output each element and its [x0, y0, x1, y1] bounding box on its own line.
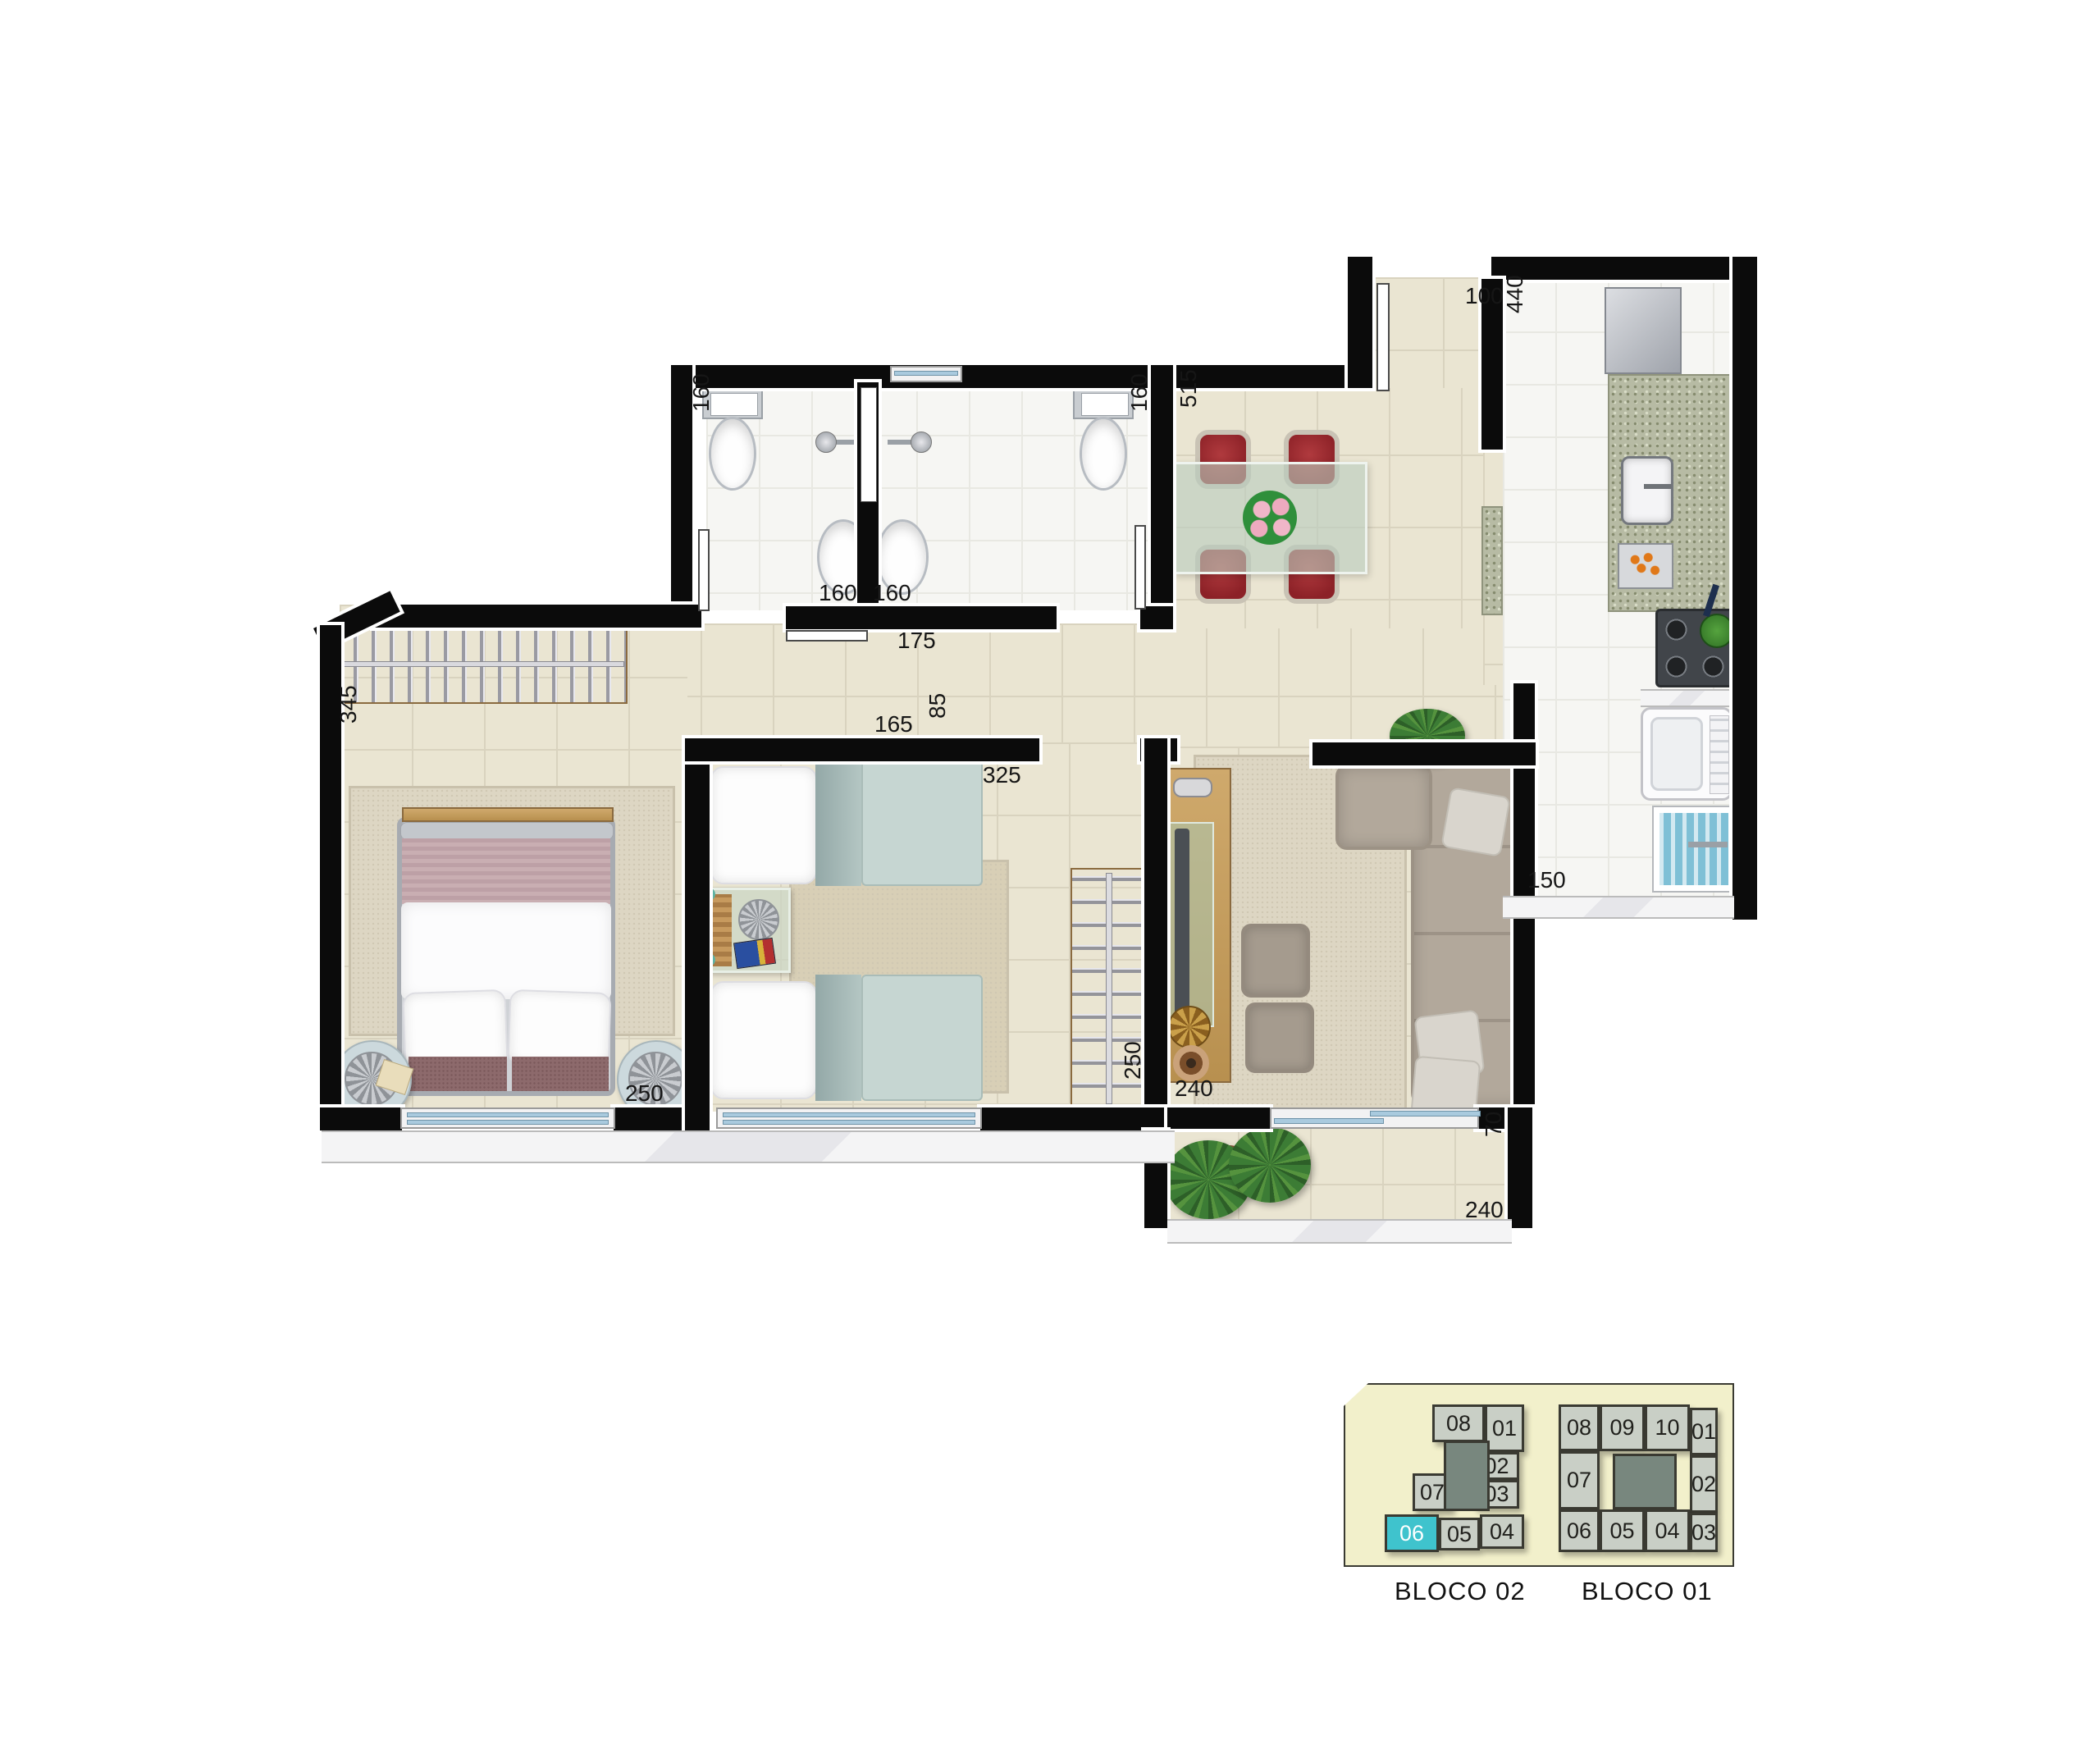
- toilet-bowl-icon: [1080, 417, 1127, 491]
- wall: [673, 365, 1370, 388]
- bathroom-door-leaf: [698, 529, 710, 611]
- dimension-label: 70: [1481, 1112, 1506, 1137]
- sofa-chaise: [1335, 765, 1432, 850]
- unit-cell: 01: [1485, 1404, 1524, 1452]
- ottoman: [1241, 924, 1310, 998]
- faucet-icon: [1644, 484, 1672, 489]
- unit-cell: 04: [1645, 1509, 1690, 1552]
- balcony-slider-panel: [1370, 1111, 1481, 1117]
- tank-faucet-icon: [1688, 842, 1728, 847]
- prep-board-icon: [1618, 543, 1673, 589]
- nightstand-lamp-icon: [738, 899, 779, 940]
- hall-door-leaf: [786, 630, 868, 642]
- dimension-label: 515: [1176, 369, 1201, 408]
- single-bed-sheet-fold: [815, 760, 861, 886]
- dimension-label: 240: [1175, 1076, 1213, 1101]
- window-sill: [716, 1107, 982, 1129]
- building-core: [1613, 1454, 1677, 1509]
- shower-head-icon: [911, 432, 932, 453]
- unit-cell: 07: [1559, 1451, 1600, 1509]
- dimension-label: 85: [925, 693, 950, 719]
- wall: [1140, 606, 1173, 629]
- dimension-label: 160: [873, 581, 911, 605]
- wall: [1491, 257, 1757, 280]
- unit-cell-highlighted: 06: [1385, 1514, 1439, 1552]
- window-sill: [400, 1107, 615, 1129]
- wall: [373, 605, 701, 628]
- tv: [1175, 829, 1189, 1021]
- dimension-label: 250: [1121, 1041, 1145, 1080]
- pan-icon: [1700, 614, 1734, 648]
- bloco01-label: BLOCO 01: [1582, 1577, 1713, 1606]
- magazine-icon: [733, 938, 776, 969]
- wall: [1508, 1107, 1532, 1228]
- wall: [786, 606, 1057, 629]
- wall: [685, 742, 710, 1130]
- master-headboard: [402, 807, 614, 822]
- toilet-icon: [1073, 386, 1134, 419]
- bathroom-door-leaf: [1134, 525, 1146, 610]
- unit-cell: 06: [1559, 1509, 1600, 1552]
- master-footer: [409, 1057, 507, 1091]
- dimension-label: 250: [625, 1081, 664, 1106]
- shower-niche: [861, 387, 877, 502]
- counter-strip: [1641, 689, 1732, 707]
- wall: [1312, 742, 1536, 765]
- kitchen-sink-icon: [1621, 456, 1673, 525]
- wall: [1348, 257, 1372, 388]
- dimension-label: 440: [1503, 275, 1527, 313]
- dimension-label: 345: [336, 685, 361, 724]
- unit-cell: 08: [1432, 1404, 1485, 1442]
- laundry-tank-icon: [1654, 807, 1734, 891]
- walkway-sill: [322, 1130, 1175, 1163]
- dimension-label: 160: [689, 373, 714, 412]
- kitchen-peninsula-counter: [1481, 506, 1503, 615]
- dimension-label: 150: [1527, 868, 1566, 893]
- dvd-player-icon: [1173, 778, 1212, 797]
- shower-head-icon: [815, 432, 837, 453]
- plant-icon: [1229, 1127, 1311, 1203]
- single-bed-cover: [861, 975, 983, 1101]
- window-glazing: [723, 1112, 975, 1117]
- unit-cell: 10: [1645, 1404, 1690, 1451]
- unit-cell: 02: [1690, 1455, 1718, 1513]
- ottoman: [1245, 1002, 1314, 1073]
- toilet-lid: [710, 393, 758, 416]
- sofa-pillow: [1440, 787, 1511, 857]
- wardrobe-rail: [1106, 873, 1112, 1104]
- building-core: [1444, 1441, 1490, 1511]
- single-bed-cover: [861, 760, 983, 886]
- wall: [1144, 738, 1167, 1130]
- deco-pinwheel-icon: [1168, 1006, 1211, 1048]
- floor-plan-page: 100 440 160 160 515 160 160 175 165 85 3…: [0, 0, 2100, 1749]
- master-duvet: [401, 902, 611, 999]
- unit-cell: 05: [1439, 1518, 1480, 1550]
- service-sill: [1503, 896, 1734, 919]
- window-glazing: [894, 371, 958, 376]
- window-glazing: [723, 1120, 975, 1125]
- dimension-label: 160: [819, 581, 857, 605]
- dimension-label: 240: [1465, 1198, 1504, 1222]
- dimension-label: 160: [1127, 373, 1152, 412]
- master-bolster: [400, 822, 614, 840]
- balcony-sill: [1167, 1219, 1512, 1244]
- wall: [1167, 1107, 1270, 1129]
- hall-floor: [628, 623, 1514, 747]
- wall: [1151, 365, 1173, 629]
- single-bed-pillow: [710, 766, 817, 884]
- dimension-label: 165: [874, 712, 913, 737]
- unit-cell: 09: [1600, 1404, 1645, 1451]
- balcony-slider-panel: [1274, 1118, 1384, 1124]
- dimension-label: 100: [1465, 284, 1504, 308]
- single-bed-sheet-fold: [815, 975, 861, 1101]
- master-footer: [512, 1057, 609, 1091]
- toilet-bowl-icon: [709, 417, 756, 491]
- wall: [980, 1107, 1171, 1130]
- washer-panel-icon: [1710, 715, 1729, 794]
- fridge-icon: [1605, 287, 1682, 374]
- window-glazing: [407, 1112, 609, 1117]
- unit-cell: 05: [1600, 1509, 1645, 1552]
- wall: [320, 1107, 402, 1130]
- toilet-lid: [1081, 393, 1129, 416]
- single-bed-pillow: [710, 981, 817, 1099]
- washer-door-icon: [1650, 717, 1703, 791]
- wall: [685, 738, 1039, 761]
- bloco02-label: BLOCO 02: [1395, 1577, 1526, 1606]
- unit-cell: 04: [1480, 1514, 1524, 1549]
- unit-cell: 08: [1559, 1404, 1600, 1451]
- wall: [1732, 257, 1757, 920]
- window-glazing: [407, 1120, 609, 1125]
- unit-cell: 03: [1690, 1513, 1718, 1552]
- unit-cell: 01: [1690, 1408, 1718, 1455]
- closet-rail: [344, 661, 624, 667]
- dimension-label: 325: [983, 763, 1021, 788]
- flower-centerpiece: [1243, 491, 1297, 545]
- master-blanket: [402, 838, 610, 904]
- entry-door-leaf: [1376, 283, 1390, 391]
- dimension-label: 175: [897, 628, 936, 653]
